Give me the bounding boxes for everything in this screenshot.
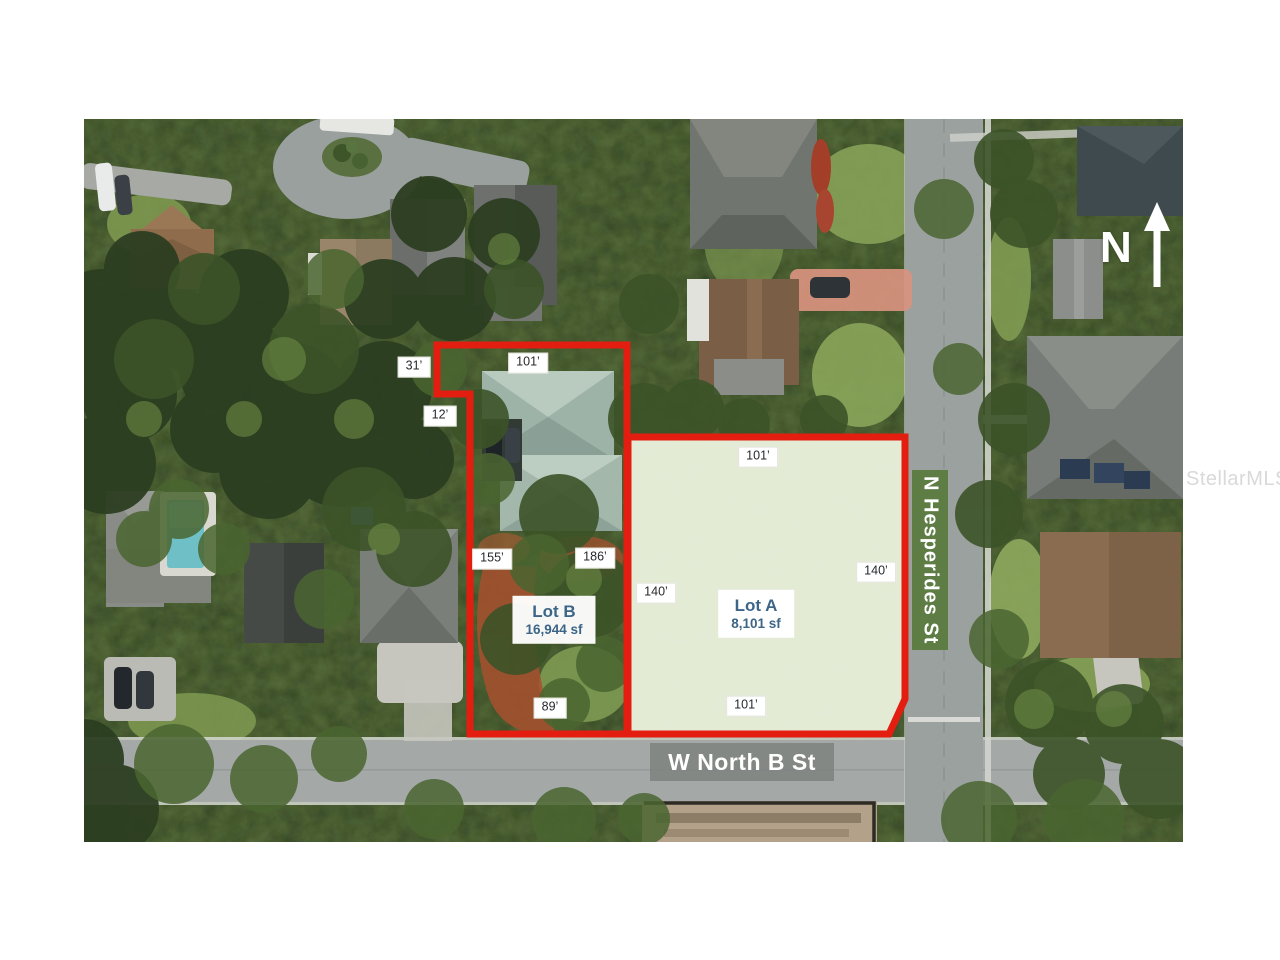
dim-label-lot-a-right: 140’: [856, 562, 896, 583]
street-banner-n-hesperides-st: N Hesperides St: [912, 470, 948, 650]
street-banner-w-north-b-st: W North B St: [650, 743, 834, 781]
lot-b-area: 16,944 sf: [525, 622, 582, 638]
lot-a-name: Lot A: [731, 595, 781, 616]
dim-label-lot-b-top-left: 31’: [398, 357, 431, 378]
stellar-mls-watermark: StellarMLS: [1186, 468, 1280, 491]
lot-overlays: [84, 119, 1183, 842]
lot-b-label: Lot B 16,944 sf: [512, 596, 595, 644]
dim-label-lot-b-step: 12’: [424, 406, 457, 427]
dim-label-lot-b-left: 155’: [472, 549, 512, 570]
lot-a-label: Lot A 8,101 sf: [718, 590, 794, 638]
listing-image: 31’ 101’ 12’ 155’ 186’ 89’ 101’ 140’ 140…: [0, 0, 1280, 960]
dim-label-lot-a-top: 101’: [738, 447, 778, 468]
dim-label-lot-b-bottom: 89’: [534, 698, 567, 719]
north-indicator: N: [1094, 189, 1183, 309]
dim-label-lot-b-right: 186’: [575, 548, 615, 569]
north-label: N: [1100, 223, 1132, 273]
dim-label-lot-a-bottom: 101’: [726, 696, 766, 717]
lot-a-area: 8,101 sf: [731, 616, 781, 632]
dim-label-lot-b-top: 101’: [508, 353, 548, 374]
lot-b-boundary: [437, 345, 627, 734]
lot-b-name: Lot B: [525, 601, 582, 622]
aerial-photo: 31’ 101’ 12’ 155’ 186’ 89’ 101’ 140’ 140…: [84, 119, 1183, 842]
dim-label-lot-a-left: 140’: [636, 583, 676, 604]
